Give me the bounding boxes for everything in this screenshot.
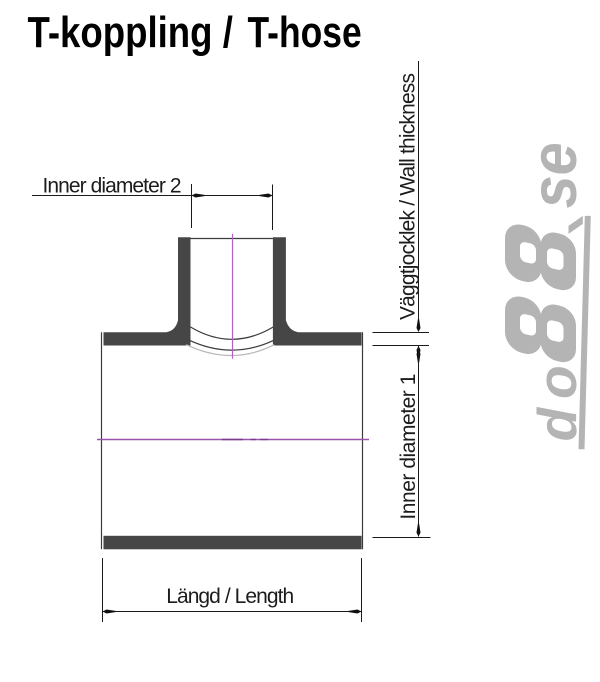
svg-text:Inner diameter 2: Inner diameter 2 [43,174,182,197]
svg-text:Längd / Length: Längd / Length [166,585,294,608]
svg-text:T-koppling /: T-koppling / [28,7,233,57]
svg-text:Inner diameter 1: Inner diameter 1 [397,374,420,520]
svg-text:se: se [517,142,590,208]
svg-text:T-hose: T-hose [248,8,362,56]
svg-text:Väggtjocklek / Wall thickness: Väggtjocklek / Wall thickness [397,73,420,320]
